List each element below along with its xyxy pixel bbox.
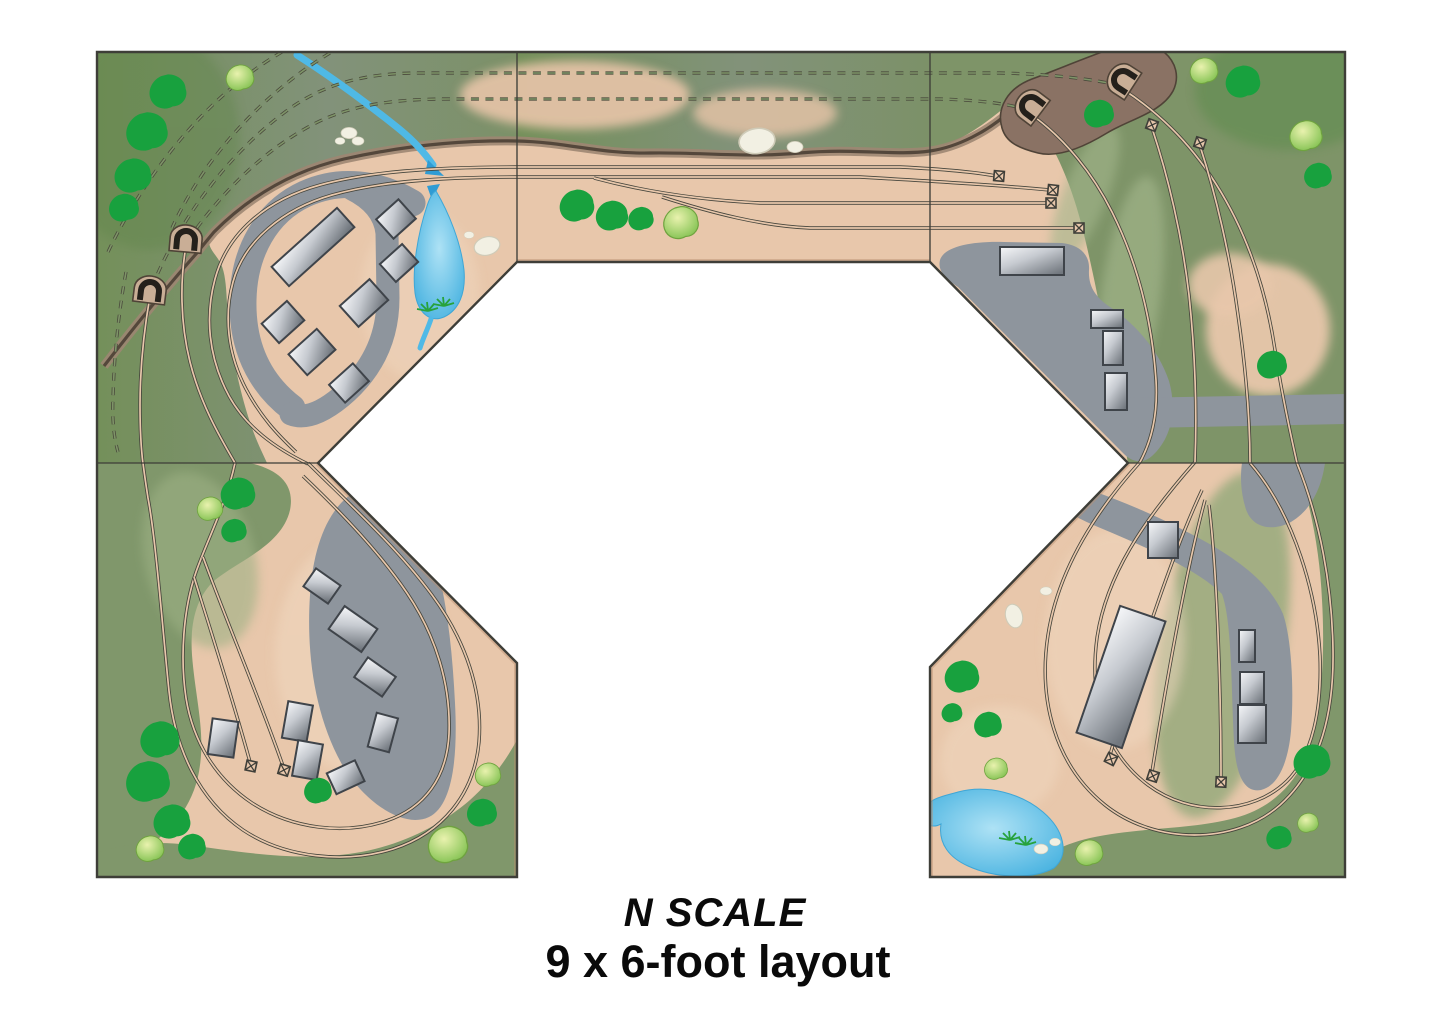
track-bumper-icon xyxy=(994,171,1005,182)
industrial-building xyxy=(1000,247,1064,275)
tree-light-icon xyxy=(664,207,699,239)
track-bumper-icon xyxy=(1074,223,1084,233)
rock-icon xyxy=(787,141,803,152)
rock-icon xyxy=(464,232,474,239)
rock-icon xyxy=(1050,838,1061,846)
rock-icon xyxy=(335,138,345,145)
track-bumper-icon xyxy=(245,760,257,772)
industrial-building xyxy=(1240,672,1264,704)
track-plan-canvas: N SCALE 9 x 6-foot layout xyxy=(0,0,1445,1028)
caption-size: 9 x 6-foot layout xyxy=(545,936,890,987)
rock-icon xyxy=(1040,587,1052,595)
tree-light-icon xyxy=(1075,840,1103,866)
industrial-building xyxy=(1091,310,1123,328)
industrial-building xyxy=(1238,705,1266,743)
track-bumper-icon xyxy=(1194,137,1207,150)
rock-icon xyxy=(341,127,357,138)
track-bumper-icon xyxy=(1147,770,1160,783)
industrial-building xyxy=(1148,522,1178,558)
tree-light-icon xyxy=(984,758,1007,779)
caption-scale: N SCALE xyxy=(624,891,807,935)
track-bumper-icon xyxy=(278,764,290,776)
tree-light-icon xyxy=(1190,58,1218,84)
benchwork xyxy=(60,30,1385,885)
rock-icon xyxy=(352,137,364,145)
industrial-building xyxy=(1239,630,1255,662)
track-bumper-icon xyxy=(1046,198,1056,208)
tree-light-icon xyxy=(226,65,254,91)
tree-light-icon xyxy=(197,497,222,521)
town-building xyxy=(282,701,313,742)
tree-light-icon xyxy=(428,826,467,862)
tree-light-icon xyxy=(1290,121,1322,151)
rock-icon xyxy=(1034,844,1048,854)
track-bumper-icon xyxy=(1216,777,1227,788)
track-bumper-icon xyxy=(1048,185,1059,196)
tree-light-icon xyxy=(475,763,500,787)
tree-light-icon xyxy=(1298,813,1319,832)
track-bumper-icon xyxy=(1146,119,1159,132)
town-building xyxy=(292,740,323,780)
town-building xyxy=(208,718,239,757)
industrial-building xyxy=(1105,373,1127,410)
tree-light-icon xyxy=(136,836,164,862)
industrial-building xyxy=(1103,331,1123,365)
